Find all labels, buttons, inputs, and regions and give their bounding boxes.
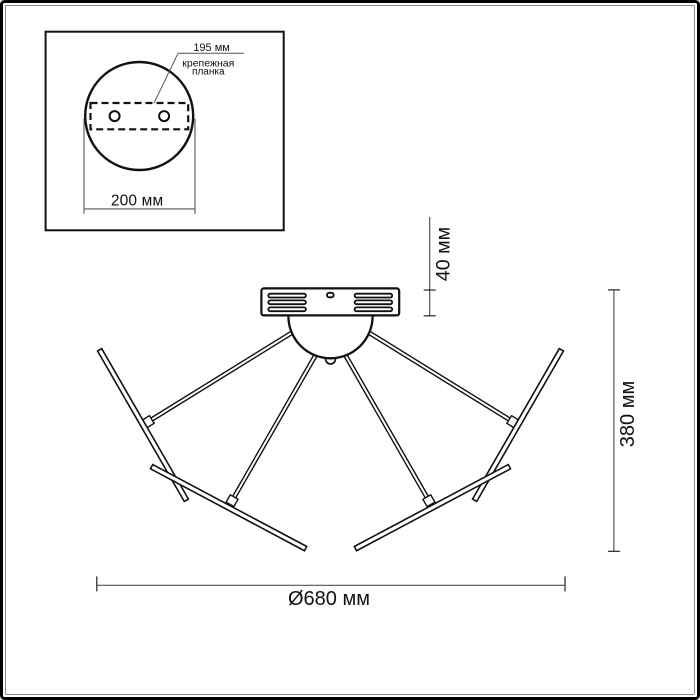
- svg-text:планка: планка: [192, 67, 225, 78]
- svg-text:40 мм: 40 мм: [433, 227, 455, 281]
- svg-text:380 мм: 380 мм: [617, 381, 639, 447]
- svg-text:200 мм: 200 мм: [111, 192, 163, 209]
- svg-text:195 мм: 195 мм: [193, 42, 230, 54]
- svg-text:Ø680 мм: Ø680 мм: [288, 588, 370, 610]
